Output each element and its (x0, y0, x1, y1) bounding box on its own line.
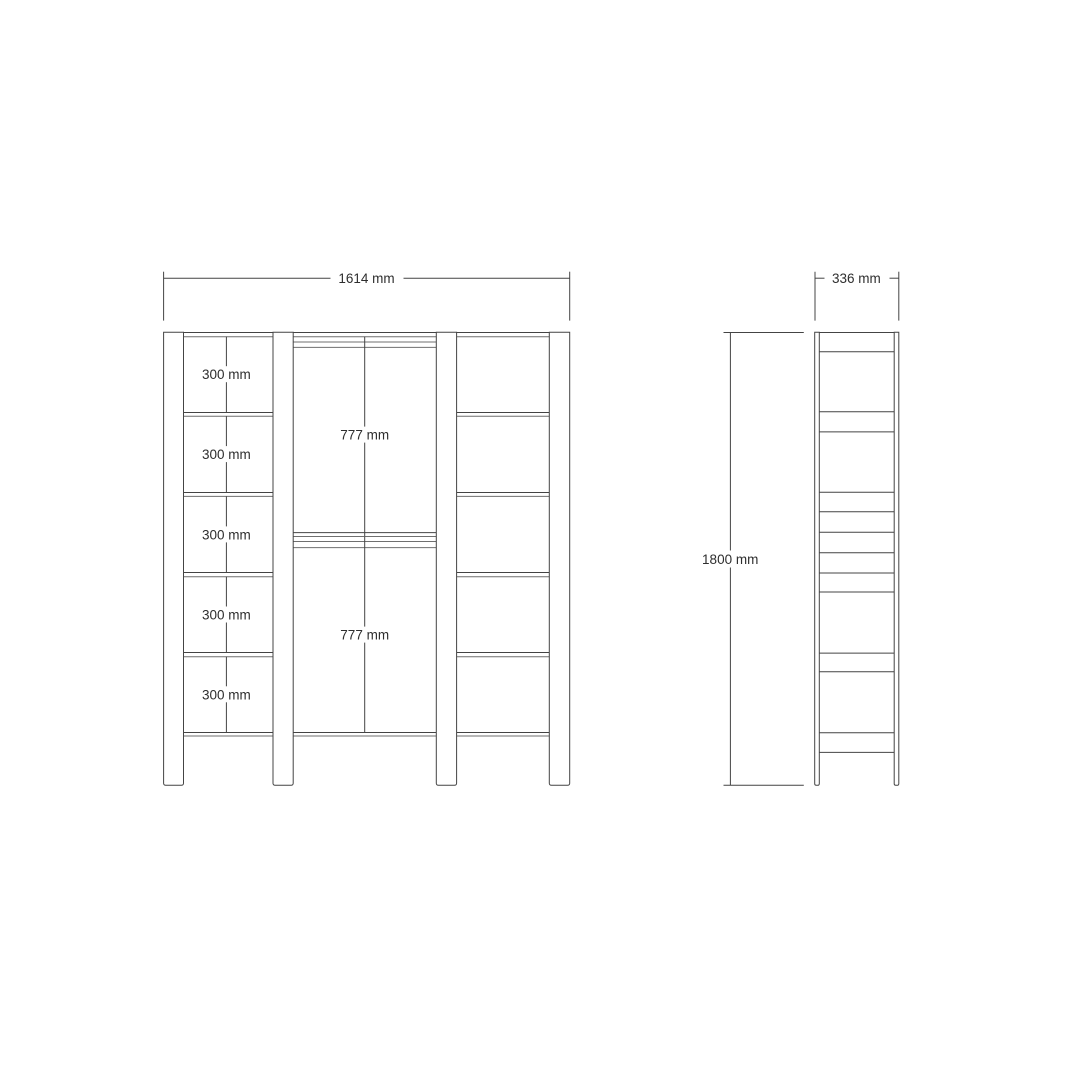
svg-text:777 mm: 777 mm (340, 428, 389, 443)
svg-text:300 mm: 300 mm (202, 447, 251, 462)
svg-text:300 mm: 300 mm (202, 687, 251, 702)
svg-text:336 mm: 336 mm (832, 271, 881, 286)
svg-text:777 mm: 777 mm (340, 628, 389, 643)
svg-text:300 mm: 300 mm (202, 608, 251, 623)
svg-text:1800 mm: 1800 mm (702, 552, 758, 567)
svg-text:300 mm: 300 mm (202, 527, 251, 542)
svg-text:300 mm: 300 mm (202, 367, 251, 382)
svg-text:1614 mm: 1614 mm (338, 271, 394, 286)
